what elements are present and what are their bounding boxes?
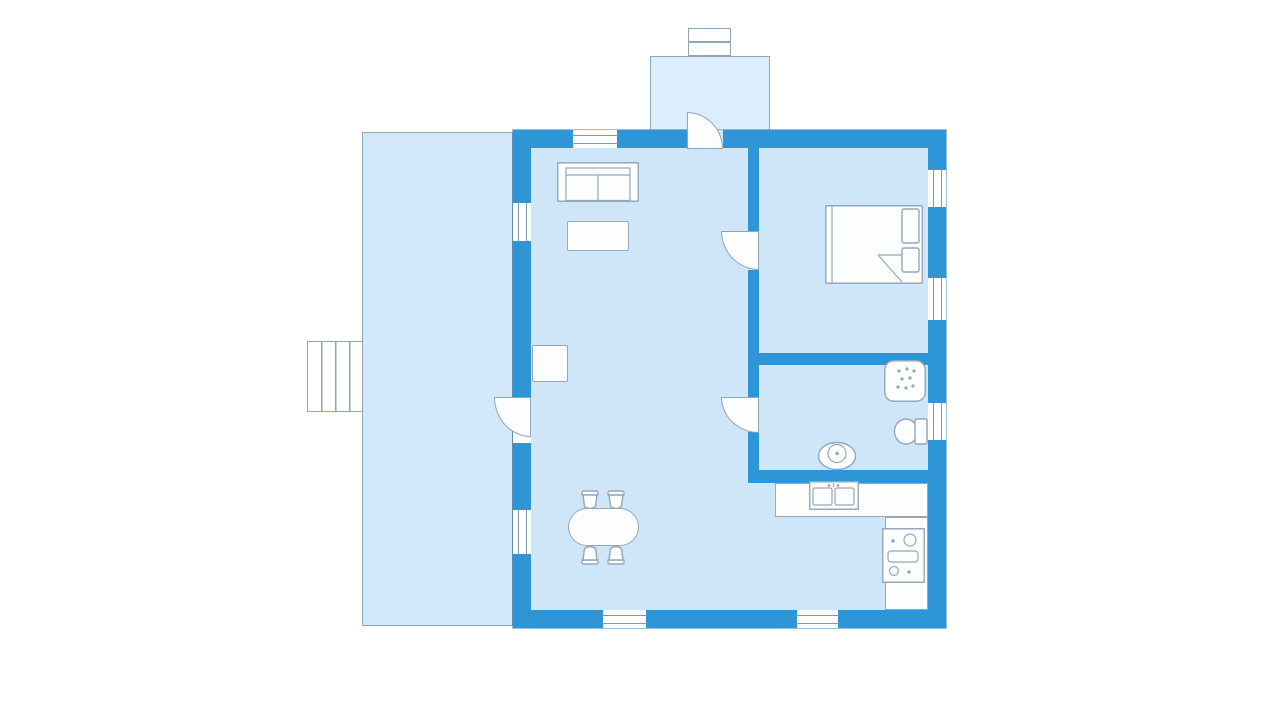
- window-pane: [602, 615, 647, 624]
- shower-icon: [884, 360, 926, 402]
- window-icon: [573, 130, 617, 148]
- chimney-icon: [688, 28, 731, 56]
- window-icon: [928, 403, 946, 440]
- window-icon: [928, 170, 946, 207]
- window-icon: [513, 510, 531, 554]
- window-pane: [518, 509, 527, 555]
- window-pane: [796, 615, 839, 624]
- window-icon: [513, 203, 531, 241]
- chair-icon: [605, 544, 627, 565]
- double-sink-icon: [809, 481, 859, 510]
- window-pane: [572, 135, 618, 144]
- deck-terrace: [362, 132, 513, 626]
- chimney-divider: [689, 41, 730, 43]
- chair-icon: [579, 544, 601, 565]
- window-pane: [933, 402, 942, 441]
- toilet-icon: [893, 417, 928, 446]
- window-icon: [928, 278, 946, 320]
- wash-basin-icon: [817, 441, 857, 471]
- window-pane: [933, 277, 942, 321]
- dining-table-icon: [568, 508, 639, 546]
- window-icon: [797, 610, 838, 628]
- double-bed-icon: [825, 205, 923, 284]
- floor-plan: [0, 0, 1280, 720]
- fireplace-icon: [532, 345, 568, 382]
- window-pane: [933, 169, 942, 208]
- sofa-icon: [557, 162, 639, 202]
- stairs-icon: [307, 341, 363, 412]
- window-icon: [603, 610, 646, 628]
- stove-icon: [882, 528, 925, 583]
- coffee-table-icon: [567, 221, 629, 251]
- interior-wall-vertical-middle: [748, 270, 759, 397]
- window-pane: [518, 202, 527, 242]
- interior-wall-vertical-upper: [748, 148, 759, 231]
